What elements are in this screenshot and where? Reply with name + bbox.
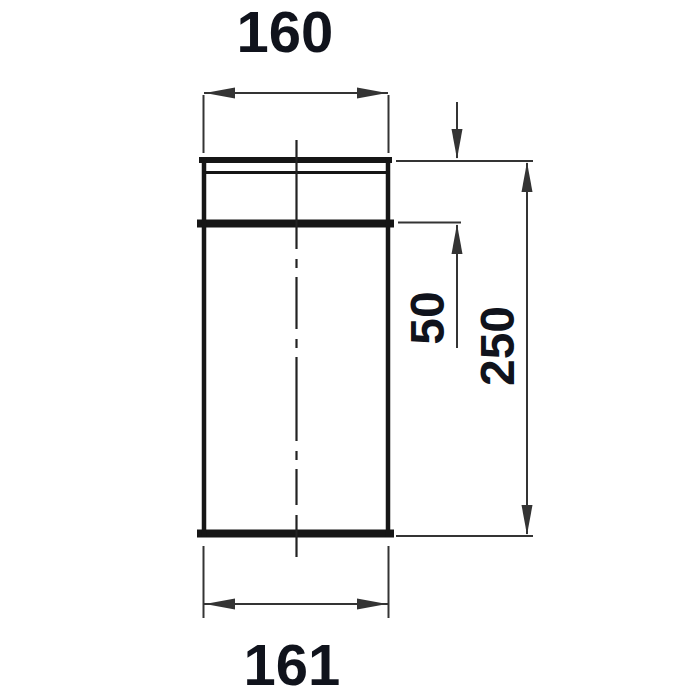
arrow-50-up [452,224,463,254]
arrow-bottom-left [205,599,235,610]
arrow-bottom-right [357,599,387,610]
drawing-canvas: 160 161 50 250 [0,0,700,700]
dimension-labels: 160 161 50 250 [237,0,524,697]
dim-label-socket-depth: 50 [401,291,454,344]
arrow-top-left [205,88,235,99]
arrow-50-down [452,129,463,159]
arrow-250-up [522,162,533,192]
dim-label-overall-length: 250 [471,306,524,386]
technical-drawing-page: 160 161 50 250 [0,0,700,700]
dim-label-top-diameter: 160 [237,0,334,64]
arrow-top-right [357,88,387,99]
dim-label-bottom-diameter: 161 [244,632,341,697]
arrow-250-down [522,505,533,535]
